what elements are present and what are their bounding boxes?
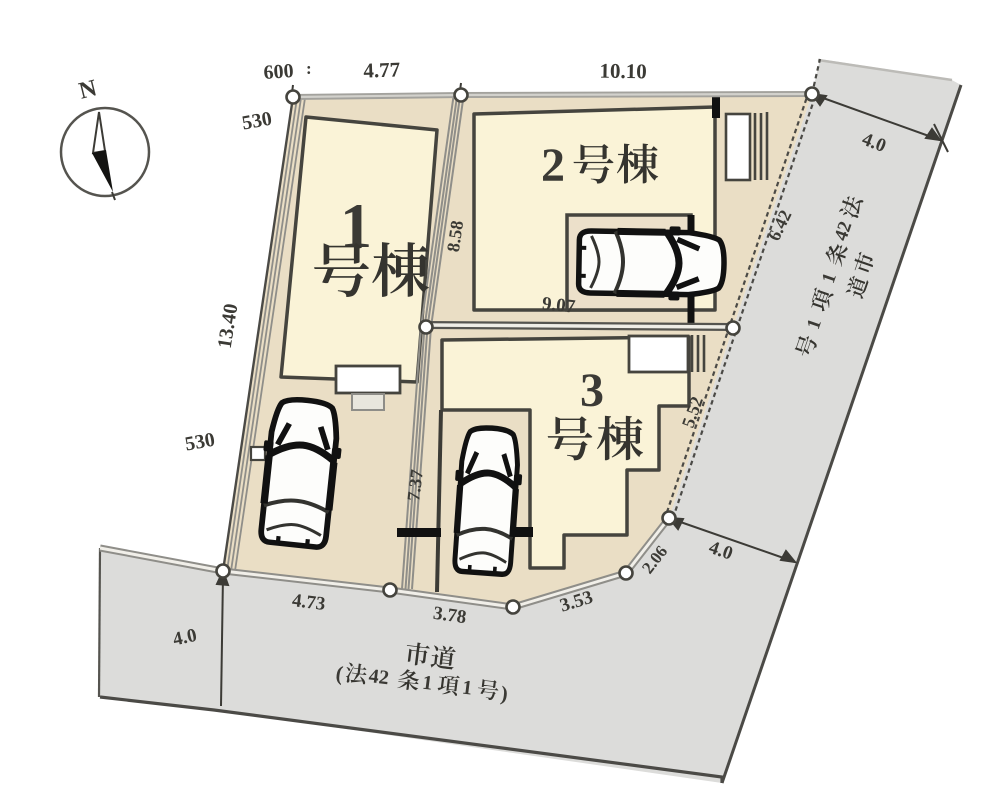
svg-text:9.07: 9.07 bbox=[541, 293, 577, 317]
svg-text:7.37: 7.37 bbox=[403, 468, 427, 502]
svg-text:4.73: 4.73 bbox=[291, 590, 327, 615]
svg-text:42: 42 bbox=[368, 665, 391, 689]
svg-text:2: 2 bbox=[541, 139, 565, 192]
svg-text:3: 3 bbox=[580, 364, 604, 417]
svg-text:600: 600 bbox=[263, 60, 294, 84]
svg-text:4.77: 4.77 bbox=[363, 57, 401, 82]
svg-text:10.10: 10.10 bbox=[599, 59, 647, 84]
svg-text::: : bbox=[306, 59, 312, 78]
